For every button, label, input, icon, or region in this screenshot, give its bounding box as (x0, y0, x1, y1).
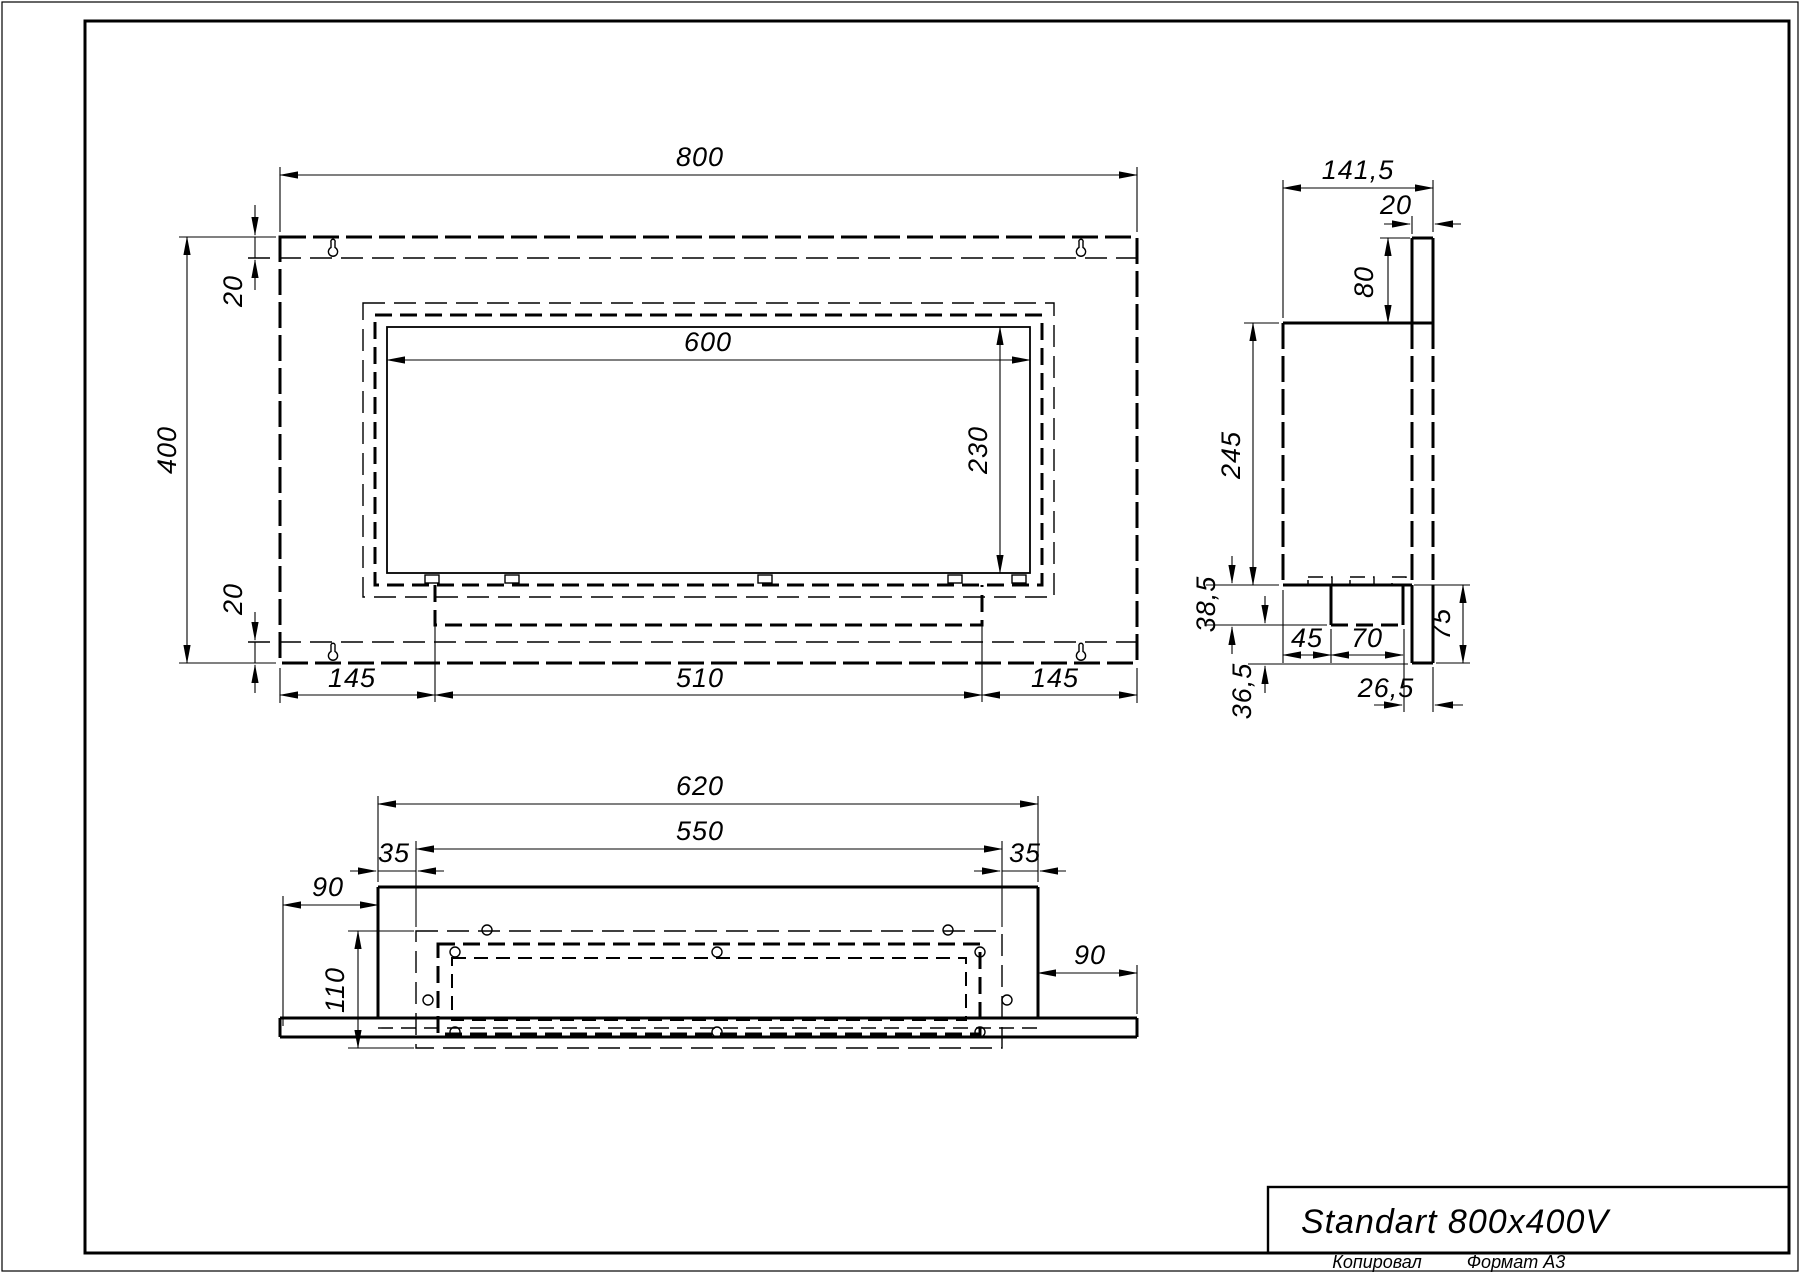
dim-tray-left: 145 (328, 663, 376, 693)
hidden-tray (435, 585, 982, 625)
dim-opening-height: 230 (963, 426, 993, 475)
bottom-dimensions: 620 550 35 35 90 90 (283, 771, 1137, 1048)
dim-front-top-inset: 20 (218, 275, 248, 308)
dim-bottom-tray-width: 620 (676, 771, 724, 801)
dim-tray-right: 145 (1031, 663, 1079, 693)
drawing-sheet: 800 400 20 20 600 230 (0, 0, 1800, 1273)
dim-inset-right: 35 (1009, 838, 1041, 868)
dim-back-offset: 26,5 (1357, 673, 1415, 703)
dim-body-height: 245 (1216, 431, 1246, 480)
mounting-frame (416, 925, 1012, 1048)
bottom-view: 620 550 35 35 90 90 (280, 771, 1137, 1048)
sheet-frame (2, 2, 1798, 1271)
dim-overhang-left: 90 (312, 872, 344, 902)
technical-drawing: 800 400 20 20 600 230 (0, 0, 1800, 1273)
dim-overhang-right: 90 (1074, 940, 1106, 970)
title-block: Standart 800x400V Копировал Формат А3 (1268, 1187, 1789, 1272)
dim-opening-width: 600 (684, 327, 732, 357)
front-dimensions: 800 400 20 20 600 230 (152, 142, 1137, 703)
dim-panel-thickness: 20 (1379, 190, 1412, 220)
dim-cutout-width: 550 (676, 816, 724, 846)
dim-panel-drop: 75 (1426, 608, 1456, 640)
dim-burner-offset: 45 (1291, 623, 1323, 653)
copied-label: Копировал (1332, 1252, 1422, 1272)
format-label: Формат А3 (1467, 1252, 1566, 1272)
dim-burner-depth: 38,5 (1191, 576, 1221, 633)
burner-box (1331, 585, 1403, 625)
dim-bottom-clearance: 36,5 (1227, 663, 1257, 720)
back-panel (1412, 238, 1433, 663)
dim-hanger-height: 80 (1349, 266, 1379, 298)
model-name: Standart 800x400V (1301, 1203, 1611, 1241)
dim-cutout-depth: 110 (320, 967, 350, 1013)
front-view: 800 400 20 20 600 230 (152, 142, 1137, 703)
dim-tray-width: 510 (676, 663, 724, 693)
dim-side-depth: 141,5 (1322, 155, 1395, 185)
side-dimensions: 141,5 20 80 245 38,5 45 (1191, 155, 1470, 719)
dim-burner-width: 70 (1351, 623, 1383, 653)
side-view: 141,5 20 80 245 38,5 45 (1191, 155, 1470, 719)
dim-front-overall-height: 400 (152, 426, 182, 474)
dim-inset-left: 35 (378, 838, 410, 868)
dim-front-overall-width: 800 (676, 142, 724, 172)
bottom-tray (378, 887, 1038, 1018)
front-outline (280, 237, 1137, 663)
dim-front-bottom-inset: 20 (218, 583, 248, 616)
